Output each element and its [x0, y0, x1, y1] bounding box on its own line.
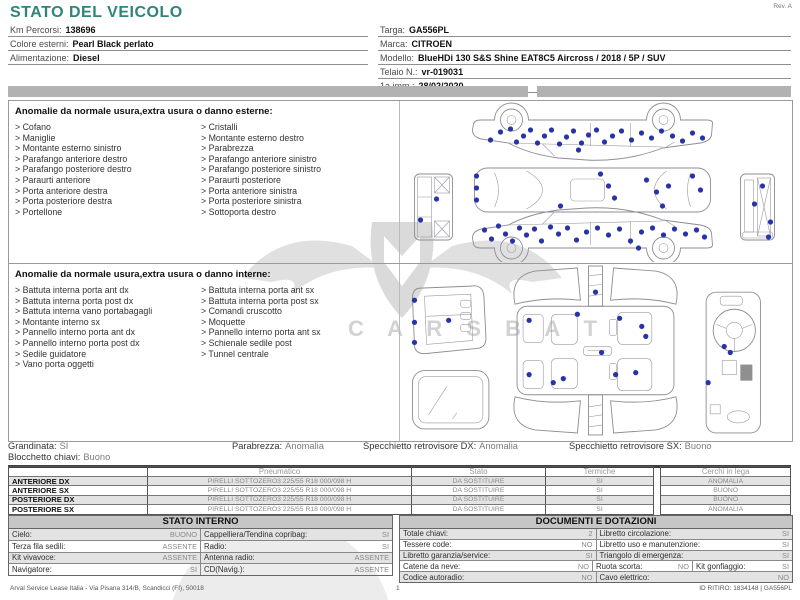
damage-dot: [556, 231, 561, 236]
condition-value: Anomalia: [479, 441, 518, 451]
damage-dot: [610, 133, 615, 138]
section-bar-right: [537, 86, 791, 97]
damage-dot: [628, 238, 633, 243]
damage-dot: [659, 128, 664, 133]
kv-row: Terza fila sedili:ASSENTERadio:SI: [9, 541, 392, 553]
documenti-title: DOCUMENTI E DOTAZIONI: [400, 516, 792, 529]
damage-dot: [698, 187, 703, 192]
condition-line-2: Blocchetto chiavi:Buono: [8, 452, 791, 463]
condition-pair: Specchietto retrovisore SX:Buono: [569, 441, 712, 451]
damage-dot: [474, 197, 479, 202]
kv-label: Ruota scorta:: [596, 562, 642, 571]
condition-label: Grandinata:: [8, 441, 57, 451]
vehicle-status-report: C A R S B A T STATO DEL VEICOLO Rev. A K…: [0, 0, 800, 600]
kv-label: Cavo elettrico:: [600, 573, 650, 582]
footer-company: Arval Service Lease Italia - Via Pisana …: [10, 585, 204, 592]
kv-pair: Kit gonfiaggio:SI: [692, 561, 792, 571]
damage-dot: [613, 372, 618, 377]
damage-dot: [670, 133, 675, 138]
damage-dot: [606, 183, 611, 188]
damage-dot: [649, 135, 654, 140]
damage-dot: [722, 344, 727, 349]
damage-dot: [412, 320, 417, 325]
kv-label: Cappelliera/Tendina copribag:: [204, 530, 307, 539]
damage-dot: [579, 140, 584, 145]
damage-dot: [574, 237, 579, 242]
info-value: Pearl Black perlato: [73, 39, 154, 49]
exterior-list-col2: > Cristalli> Montante esterno destro> Pa…: [201, 122, 387, 217]
kv-value: NO: [581, 573, 592, 582]
damage-dot: [752, 201, 757, 206]
info-value: CITROEN: [412, 39, 453, 49]
damage-dot: [660, 203, 665, 208]
damage-dot: [535, 140, 540, 145]
damage-dot: [576, 147, 581, 152]
kv-label: Codice autoradio:: [403, 573, 464, 582]
kv-label: Terza fila sedili:: [12, 542, 65, 551]
kv-label: Libretto uso e manutenzione:: [600, 540, 701, 549]
anomaly-item: > Porta anteriore sinistra: [201, 186, 387, 197]
condition-summary: Grandinata:SIParabrezza:AnomaliaSpecchie…: [8, 441, 791, 468]
section-bar-left: [8, 86, 528, 97]
kv-label: Cielo:: [12, 530, 32, 539]
damage-dot: [584, 229, 589, 234]
car-front-view: [415, 174, 453, 240]
stato-interno-rows: Cielo:BUONOCappelliera/Tendina copribag:…: [9, 529, 392, 575]
kv-label: Kit vivavoce:: [12, 553, 56, 562]
damage-dot: [418, 217, 423, 222]
kv-value: SI: [782, 540, 789, 549]
damage-dot: [548, 224, 553, 229]
kv-row: Codice autoradio:NOCavo elettrico:NO: [400, 572, 792, 582]
kv-row: Kit vivavoce:ASSENTEAntenna radio:ASSENT…: [9, 553, 392, 565]
kv-label: Tessere code:: [403, 540, 452, 549]
tire-termiche: SI: [546, 505, 653, 514]
kv-value: NO: [578, 562, 589, 571]
damage-dot: [575, 312, 580, 317]
kv-pair: Cappelliera/Tendina copribag:SI: [200, 529, 392, 540]
damage-dot: [510, 238, 515, 243]
kv-value: ASSENTE: [163, 542, 198, 551]
tire-pneumatico: PIRELLI SOTTOZERO3 225/55 R18 000/098 H: [148, 505, 412, 514]
damage-dot: [661, 232, 666, 237]
damage-dot: [434, 196, 439, 201]
tire-header-empty: [9, 467, 148, 477]
kv-row: Libretto garanzia/service:SITriangolo di…: [400, 551, 792, 562]
damage-dot: [517, 225, 522, 230]
damage-dot: [496, 223, 501, 228]
condition-value: SI: [60, 441, 69, 451]
anomalies-box: Anomalie da normale usura,extra usura o …: [8, 100, 793, 442]
condition-pair: Blocchetto chiavi:Buono: [8, 452, 232, 462]
condition-label: Blocchetto chiavi:: [8, 452, 80, 462]
cerchi-header: Cerchi in lega: [661, 467, 790, 477]
footer-page-number: 1: [396, 585, 400, 592]
damage-dot: [768, 219, 773, 224]
kv-row: Totale chiavi:2Libretto circolazione:SI: [400, 529, 792, 540]
info-label: Km Percorsi:: [10, 25, 62, 35]
damage-dot: [412, 340, 417, 345]
damage-dot: [606, 232, 611, 237]
tire-stato: DA SOSTITUIRE: [412, 486, 546, 495]
kv-value: 2: [588, 529, 592, 538]
anomaly-item: > Schienale sedile post: [201, 338, 387, 349]
kv-row: Catene da neve:NORuota scorta:NOKit gonf…: [400, 561, 792, 572]
kv-label: Libretto circolazione:: [600, 529, 672, 538]
anomaly-item: > Paraurti posteriore: [201, 175, 387, 186]
anomaly-item: > Sottoporta destro: [201, 207, 387, 218]
anomaly-item: > Maniglie: [15, 133, 201, 144]
kv-pair: Ruota scorta:NO: [592, 561, 692, 571]
cerchi-value: BUONO: [661, 486, 790, 495]
damage-dot: [706, 380, 711, 385]
documenti-dotazioni-table: DOCUMENTI E DOTAZIONI Totale chiavi:2Lib…: [399, 515, 793, 583]
damage-dot: [672, 226, 677, 231]
kv-pair: CD(Navig.):ASSENTE: [200, 564, 392, 575]
damage-dot: [728, 350, 733, 355]
condition-pair: Specchietto retrovisore DX:Anomalia: [363, 441, 569, 451]
damage-dot: [683, 231, 688, 236]
exterior-anomalies-heading: Anomalie da normale usura,extra usura o …: [9, 101, 398, 120]
anomaly-item: > Montante esterno sinistro: [15, 143, 201, 154]
exterior-damage-diagram: [400, 102, 791, 267]
condition-value: Buono: [685, 441, 712, 451]
damage-dot: [527, 318, 532, 323]
footer-ritiro-id: ID RITIRO: 1834148 | GA556PL: [699, 585, 792, 592]
anomaly-item: > Parafango anteriore sinistro: [201, 154, 387, 165]
anomaly-item: > Portellone: [15, 207, 201, 218]
kv-value: SI: [382, 542, 389, 551]
vehicle-info-left: Km Percorsi:138696Colore esterni:Pearl B…: [8, 23, 368, 65]
condition-label: Parabrezza:: [232, 441, 282, 451]
kv-value: SI: [586, 551, 593, 560]
documenti-rows: Totale chiavi:2Libretto circolazione:SIT…: [400, 529, 792, 582]
damage-dot: [489, 236, 494, 241]
damage-dot: [446, 318, 451, 323]
kv-value: ASSENTE: [355, 553, 390, 562]
kv-row: Navigatore:SICD(Navig.):ASSENTE: [9, 564, 392, 575]
kv-pair: Cavo elettrico:NO: [596, 572, 793, 582]
damage-dot: [557, 141, 562, 146]
anomaly-item: > Cofano: [15, 122, 201, 133]
damage-dot: [629, 137, 634, 142]
anomaly-item: > Porta anteriore destra: [15, 186, 201, 197]
kv-pair: Tessere code:NO: [400, 540, 596, 550]
kv-value: SI: [782, 551, 789, 560]
interior-damage-diagram: [400, 264, 791, 445]
tailgate-view: [412, 371, 488, 429]
interior-anomalies-heading: Anomalie da normale usura,extra usura o …: [9, 264, 398, 283]
anomaly-item: > Parabrezza: [201, 143, 387, 154]
interior-anomalies-lists: > Battuta interna porta ant dx> Battuta …: [9, 283, 398, 370]
damage-dot: [700, 135, 705, 140]
damage-dot: [617, 316, 622, 321]
kv-pair: Navigatore:SI: [9, 564, 200, 575]
condition-label: Specchietto retrovisore SX:: [569, 441, 682, 451]
info-value: BlueHDi 130 S&S Shine EAT8C5 Aircross / …: [418, 53, 665, 63]
anomaly-item: > Vano porta oggetti: [15, 359, 201, 370]
condition-value: Buono: [83, 452, 110, 462]
damage-dot: [619, 128, 624, 133]
damage-dot: [528, 127, 533, 132]
kv-pair: Kit vivavoce:ASSENTE: [9, 553, 200, 564]
anomaly-item: > Sedile guidatore: [15, 349, 201, 360]
vehicle-info-right: Targa:GA556PLMarca:CITROENModello:BlueHD…: [378, 23, 791, 93]
anomaly-item: > Comandi cruscotto: [201, 306, 387, 317]
kv-label: Triangolo di emergenza:: [600, 551, 684, 560]
condition-line-1: Grandinata:SIParabrezza:AnomaliaSpecchie…: [8, 441, 791, 452]
damage-dot: [514, 139, 519, 144]
damage-dot: [650, 225, 655, 230]
tire-pneumatico: PIRELLI SOTTOZERO3 225/55 R18 000/098 H: [148, 486, 412, 495]
damage-dot: [639, 229, 644, 234]
exterior-list-col1: > Cofano> Maniglie> Montante esterno sin…: [15, 122, 201, 217]
kv-pair: Catene da neve:NO: [400, 561, 592, 571]
damage-dot: [617, 226, 622, 231]
kv-label: Catene da neve:: [403, 562, 460, 571]
vehicle-info-row: Alimentazione:Diesel: [8, 51, 368, 65]
dashboard-view: [706, 292, 760, 433]
exterior-anomalies-lists: > Cofano> Maniglie> Montante esterno sin…: [9, 120, 398, 217]
damage-dot: [586, 132, 591, 137]
vehicle-info-row: Modello:BlueHDi 130 S&S Shine EAT8C5 Air…: [378, 51, 791, 65]
kv-value: ASSENTE: [355, 565, 390, 574]
anomaly-item: > Battuta interna porta ant sx: [201, 285, 387, 296]
tire-stato: DA SOSTITUIRE: [412, 496, 546, 505]
anomaly-item: > Porta posteriore sinistra: [201, 196, 387, 207]
info-label: Colore esterni:: [10, 39, 69, 49]
condition-pair: Parabrezza:Anomalia: [232, 441, 363, 451]
cerchi-value: ANOMALIA: [661, 477, 790, 486]
damage-dot: [694, 227, 699, 232]
damage-dot: [558, 203, 563, 208]
tire-header: Termiche: [546, 467, 653, 477]
anomaly-item: > Moquette: [201, 317, 387, 328]
anomaly-item: > Pannello interno porta post dx: [15, 338, 201, 349]
vehicle-info-row: Telaio N.:vr-019031: [378, 65, 791, 79]
kv-label: Libretto garanzia/service:: [403, 551, 490, 560]
anomaly-item: > Parafango posteriore sinistro: [201, 164, 387, 175]
kv-label: Antenna radio:: [204, 553, 255, 562]
damage-dot: [527, 372, 532, 377]
anomaly-item: > Parafango anteriore destro: [15, 154, 201, 165]
damage-dot: [702, 234, 707, 239]
vehicle-info-row: Km Percorsi:138696: [8, 23, 368, 37]
car-top-view: [475, 168, 711, 212]
damage-dot: [482, 227, 487, 232]
damage-dot: [542, 133, 547, 138]
tire-termiche: SI: [546, 496, 653, 505]
damage-dot: [539, 238, 544, 243]
kv-row: Tessere code:NOLibretto uso e manutenzio…: [400, 540, 792, 551]
damage-dot: [474, 185, 479, 190]
anomaly-item: > Battuta interna porta post sx: [201, 296, 387, 307]
tire-stato: DA SOSTITUIRE: [412, 505, 546, 514]
page-title: STATO DEL VEICOLO: [10, 4, 183, 22]
interior-list-col2: > Battuta interna porta ant sx> Battuta …: [201, 285, 387, 370]
anomaly-item: > Battuta interna vano portabagagli: [15, 306, 201, 317]
condition-value: Anomalia: [285, 441, 324, 451]
damage-dot: [595, 225, 600, 230]
kv-value: SI: [382, 530, 389, 539]
kv-value: BUONO: [170, 530, 197, 539]
tire-pneumatico: PIRELLI SOTTOZERO3 225/55 R18 000/098 H: [148, 477, 412, 486]
info-label: Alimentazione:: [10, 53, 69, 63]
damage-dot: [551, 380, 556, 385]
info-label: Targa:: [380, 25, 405, 35]
damage-dot: [612, 195, 617, 200]
kv-label: Navigatore:: [12, 565, 52, 574]
damage-dot: [766, 234, 771, 239]
tire-termiche: SI: [546, 477, 653, 486]
anomaly-item: > Pannello interno porta ant sx: [201, 327, 387, 338]
damage-dot: [524, 232, 529, 237]
damage-dot: [498, 129, 503, 134]
kv-label: CD(Navig.):: [204, 565, 245, 574]
info-label: Marca:: [380, 39, 408, 49]
anomaly-item: > Cristalli: [201, 122, 387, 133]
tire-position: ANTERIORE DX: [9, 477, 148, 486]
damage-dot: [503, 231, 508, 236]
kv-value: SI: [190, 565, 197, 574]
kv-pair: Antenna radio:ASSENTE: [200, 553, 392, 564]
damage-dot: [599, 350, 604, 355]
interior-list-col1: > Battuta interna porta ant dx> Battuta …: [15, 285, 201, 370]
damage-dot: [549, 127, 554, 132]
info-value: GA556PL: [409, 25, 449, 35]
damage-dot: [474, 173, 479, 178]
exterior-anomalies-panel: Anomalie da normale usura,extra usura o …: [9, 101, 398, 262]
cerchi-value: BUONO: [661, 496, 790, 505]
anomaly-item: > Battuta interna porta post dx: [15, 296, 201, 307]
kv-pair: Radio:SI: [200, 541, 392, 552]
damage-dot: [594, 127, 599, 132]
kv-value: NO: [778, 573, 789, 582]
anomaly-item: > Montante esterno destro: [201, 133, 387, 144]
damage-dot: [639, 324, 644, 329]
condition-pair: Grandinata:SI: [8, 441, 232, 451]
alloy-wheels-table: Cerchi in legaANOMALIABUONOBUONOANOMALIA: [660, 466, 791, 515]
damage-dot: [564, 134, 569, 139]
damage-dot: [636, 245, 641, 250]
damage-dot: [602, 139, 607, 144]
kv-row: Cielo:BUONOCappelliera/Tendina copribag:…: [9, 529, 392, 541]
anomaly-item: > Tunnel centrale: [201, 349, 387, 360]
info-value: Diesel: [73, 53, 100, 63]
damage-dot: [561, 376, 566, 381]
damage-dot: [643, 334, 648, 339]
vehicle-info-row: Targa:GA556PL: [378, 23, 791, 37]
damage-dot: [633, 370, 638, 375]
damage-dot: [593, 290, 598, 295]
tire-table: PneumaticoStatoTermicheANTERIORE DXPIREL…: [8, 466, 654, 515]
info-label: Modello:: [380, 53, 414, 63]
damage-dot: [532, 226, 537, 231]
revision-label: Rev. A: [773, 3, 792, 10]
kv-pair: Libretto garanzia/service:SI: [400, 551, 596, 561]
damage-dot: [639, 130, 644, 135]
cerchi-value: ANOMALIA: [661, 505, 790, 514]
damage-dot: [690, 130, 695, 135]
kv-pair: Libretto uso e manutenzione:SI: [596, 540, 793, 550]
anomaly-item: > Pannello interno porta ant dx: [15, 327, 201, 338]
anomaly-item: > Battuta interna porta ant dx: [15, 285, 201, 296]
damage-dot: [488, 137, 493, 142]
vehicle-info-row: Marca:CITROEN: [378, 37, 791, 51]
damage-dot: [644, 177, 649, 182]
kv-pair: Triangolo di emergenza:SI: [596, 551, 793, 561]
kv-pair: Terza fila sedili:ASSENTE: [9, 541, 200, 552]
kv-pair: Codice autoradio:NO: [400, 572, 596, 582]
damage-dot: [654, 189, 659, 194]
kv-label: Totale chiavi:: [403, 529, 448, 538]
damage-dot: [760, 183, 765, 188]
info-value: 138696: [66, 25, 96, 35]
kv-pair: Libretto circolazione:SI: [596, 529, 793, 539]
tire-termiche: SI: [546, 486, 653, 495]
damage-dot: [571, 128, 576, 133]
damage-dot: [690, 173, 695, 178]
kv-pair: Totale chiavi:2: [400, 529, 596, 539]
tire-position: POSTERIORE DX: [9, 496, 148, 505]
anomaly-item: > Parafango posteriore destro: [15, 164, 201, 175]
tire-header: Pneumatico: [148, 467, 412, 477]
kv-value: NO: [581, 540, 592, 549]
car-rear-view: [741, 174, 775, 240]
damage-dot: [680, 138, 685, 143]
damage-dot: [598, 171, 603, 176]
kv-label: Radio:: [204, 542, 227, 551]
vehicle-info-row: Colore esterni:Pearl Black perlato: [8, 37, 368, 51]
kv-value: NO: [678, 562, 689, 571]
tire-section: PneumaticoStatoTermicheANTERIORE DXPIREL…: [8, 466, 791, 515]
interior-anomalies-panel: Anomalie da normale usura,extra usura o …: [9, 264, 398, 440]
damage-dot: [521, 133, 526, 138]
tire-pneumatico: PIRELLI SOTTOZERO3 225/55 R18 000/098 H: [148, 496, 412, 505]
stato-interno-table: STATO INTERNO Cielo:BUONOCappelliera/Ten…: [8, 515, 393, 576]
tire-position: POSTERIORE SX: [9, 505, 148, 514]
tire-header: Stato: [412, 467, 546, 477]
anomaly-item: > Porta posteriore destra: [15, 196, 201, 207]
condition-label: Specchietto retrovisore DX:: [363, 441, 476, 451]
kv-value: ASSENTE: [163, 553, 198, 562]
kv-pair: Cielo:BUONO: [9, 529, 200, 540]
stato-interno-title: STATO INTERNO: [9, 516, 392, 529]
info-label: Telaio N.:: [380, 67, 418, 77]
info-value: vr-019031: [422, 67, 464, 77]
car-side-view-top: [473, 103, 713, 160]
tire-stato: DA SOSTITUIRE: [412, 477, 546, 486]
tire-position: ANTERIORE SX: [9, 486, 148, 495]
damage-dot: [412, 298, 417, 303]
car-side-view-bottom: [473, 208, 713, 262]
damage-dot: [508, 126, 513, 131]
anomaly-item: > Montante interno sx: [15, 317, 201, 328]
kv-label: Kit gonfiaggio:: [696, 562, 745, 571]
damage-dot: [666, 183, 671, 188]
kv-value: SI: [782, 562, 789, 571]
damage-dot: [565, 225, 570, 230]
kv-value: SI: [782, 529, 789, 538]
anomaly-item: > Paraurti anteriore: [15, 175, 201, 186]
